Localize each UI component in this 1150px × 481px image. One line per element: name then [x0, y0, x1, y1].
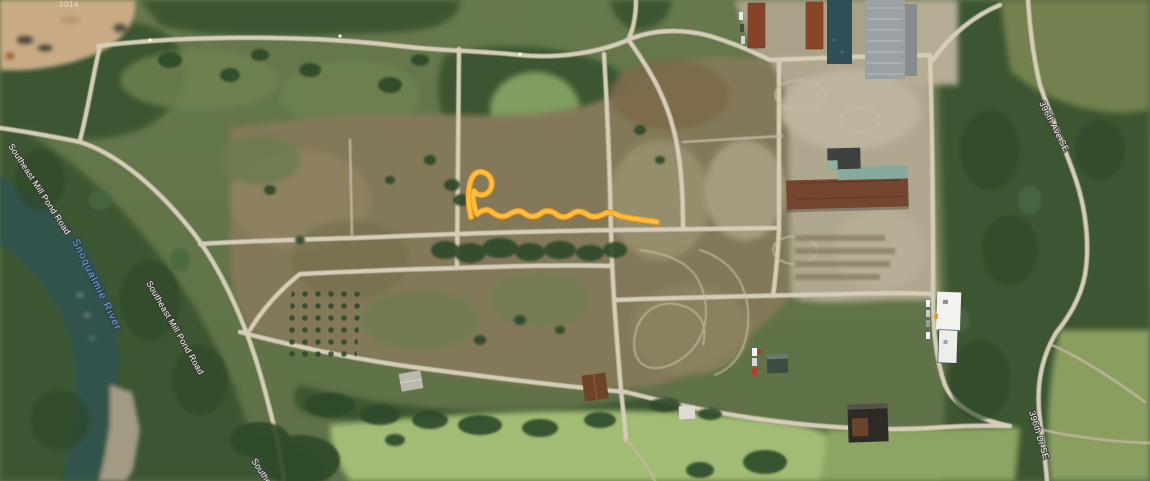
log-pond	[827, 0, 852, 64]
dark-warehouse	[847, 403, 888, 442]
imagery-date-watermark: 2014	[59, 0, 79, 9]
tree-plantation	[286, 288, 362, 362]
gray-shed	[399, 370, 424, 392]
satellite-imagery: Snoqualmie River Southeast Mill Pond Roa…	[0, 0, 1150, 481]
rust-shed-east	[806, 2, 823, 49]
field-office-building	[767, 354, 789, 374]
warehouse-building	[865, 0, 917, 79]
barn-building	[581, 372, 608, 401]
rust-shed-west	[748, 3, 765, 48]
satellite-map-canvas[interactable]: Snoqualmie River Southeast Mill Pond Roa…	[0, 0, 1150, 481]
small-white-shed	[679, 406, 696, 420]
white-office-building	[935, 292, 961, 364]
